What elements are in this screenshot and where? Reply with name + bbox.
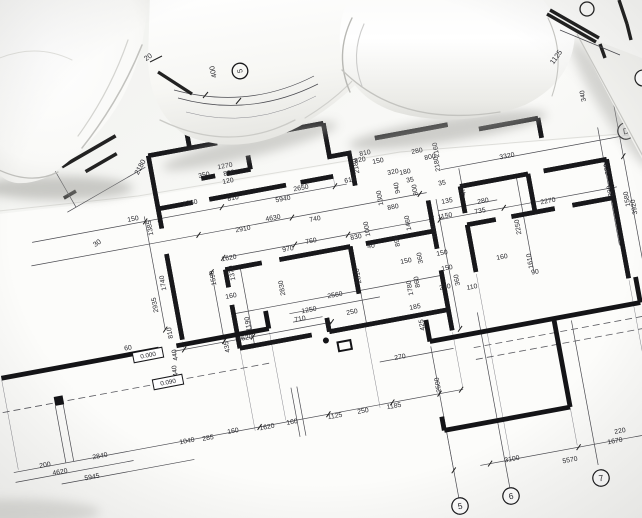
vignette-overlay bbox=[0, 0, 642, 518]
blueprint-photo-canvas: 1270350800120265013608105940463074029101… bbox=[0, 0, 642, 518]
blueprint-photo: 1270350800120265013608105940463074029101… bbox=[0, 0, 642, 518]
